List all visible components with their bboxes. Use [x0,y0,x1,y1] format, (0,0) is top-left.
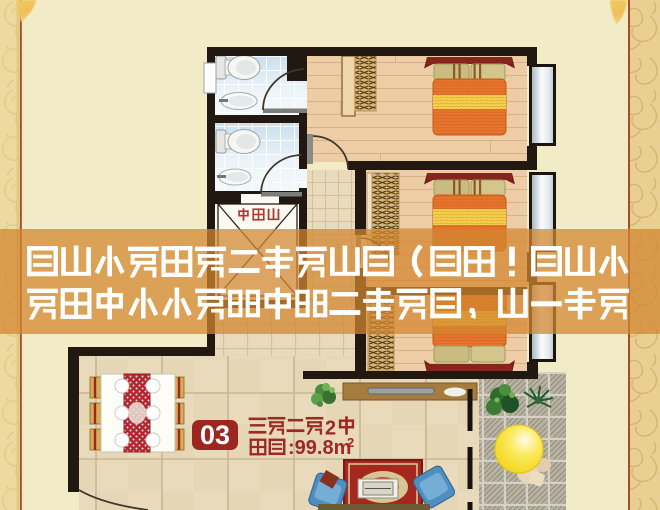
svg-text:03: 03 [200,420,230,450]
svg-text:2: 2 [347,435,354,450]
svg-text::99.8m: :99.8m [288,437,351,459]
